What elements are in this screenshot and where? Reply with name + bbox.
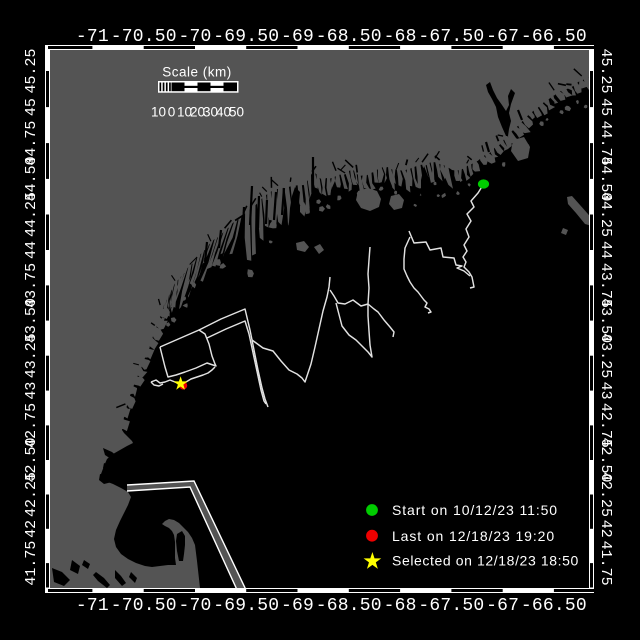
svg-text:44: 44 <box>23 241 40 259</box>
svg-text:-69: -69 <box>281 596 314 616</box>
svg-text:-67: -67 <box>486 27 519 47</box>
svg-text:45.25: 45.25 <box>597 48 614 93</box>
svg-text:-68: -68 <box>384 27 417 47</box>
svg-text:43.25: 43.25 <box>597 333 614 378</box>
svg-text:43: 43 <box>23 382 40 400</box>
svg-text:41.75: 41.75 <box>597 541 614 586</box>
svg-text:42: 42 <box>23 520 40 538</box>
svg-text:Last on 12/18/23 19:20: Last on 12/18/23 19:20 <box>392 528 555 544</box>
svg-text:-67: -67 <box>486 596 519 616</box>
svg-text:43: 43 <box>597 382 614 400</box>
svg-text:42.25: 42.25 <box>597 472 614 517</box>
svg-text:-67.50: -67.50 <box>418 596 484 616</box>
svg-text:-70: -70 <box>178 27 211 47</box>
svg-text:-70.50: -70.50 <box>111 596 177 616</box>
svg-text:-70: -70 <box>178 596 211 616</box>
svg-text:-71: -71 <box>76 27 109 47</box>
svg-text:-69.50: -69.50 <box>213 596 279 616</box>
svg-text:-68: -68 <box>384 596 417 616</box>
svg-text:-69.50: -69.50 <box>213 27 279 47</box>
svg-text:43.25: 43.25 <box>23 333 40 378</box>
svg-text:-68.50: -68.50 <box>316 27 382 47</box>
svg-text:Scale (km): Scale (km) <box>162 65 232 80</box>
svg-text:44.25: 44.25 <box>597 192 614 237</box>
svg-text:50: 50 <box>229 105 244 120</box>
svg-text:42: 42 <box>597 520 614 538</box>
svg-text:-71: -71 <box>76 596 109 616</box>
svg-text:Selected on 12/18/23 18:50: Selected on 12/18/23 18:50 <box>392 553 579 569</box>
svg-text:10: 10 <box>151 105 166 120</box>
svg-text:45.25: 45.25 <box>23 48 40 93</box>
svg-text:41.75: 41.75 <box>23 541 40 586</box>
svg-text:-66.50: -66.50 <box>521 596 587 616</box>
svg-text:-68.50: -68.50 <box>316 596 382 616</box>
svg-text:Start on 10/12/23 11:50: Start on 10/12/23 11:50 <box>392 502 558 518</box>
svg-text:-69: -69 <box>281 27 314 47</box>
svg-text:-70.50: -70.50 <box>111 27 177 47</box>
svg-text:-66.50: -66.50 <box>521 27 587 47</box>
svg-text:44.25: 44.25 <box>23 192 40 237</box>
svg-text:0: 0 <box>168 105 176 120</box>
svg-text:45: 45 <box>23 98 40 116</box>
svg-text:45: 45 <box>597 98 614 116</box>
svg-text:-67.50: -67.50 <box>418 27 484 47</box>
svg-text:42.25: 42.25 <box>23 472 40 517</box>
svg-text:44: 44 <box>597 241 614 259</box>
